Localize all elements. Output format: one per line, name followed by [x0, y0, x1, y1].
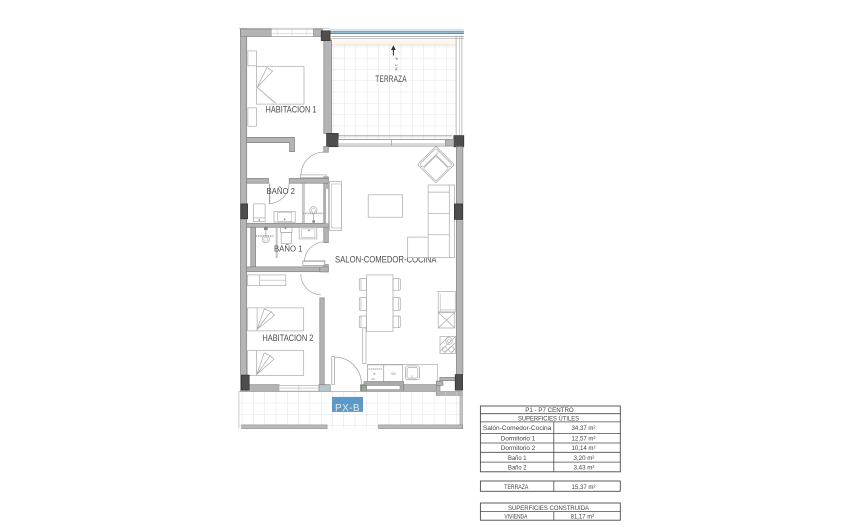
svg-text:HABITACION 2: HABITACION 2 [262, 333, 313, 343]
svg-text:Dormitorio 1: Dormitorio 1 [501, 436, 536, 443]
svg-text:12,57 m²: 12,57 m² [572, 436, 596, 443]
svg-text:oo: oo [372, 377, 376, 381]
svg-text:SUPERFICIES CONSTRUIDA: SUPERFICIES CONSTRUIDA [508, 505, 590, 512]
svg-text:HABITACION 1: HABITACION 1 [266, 104, 317, 114]
svg-text:Baño 2: Baño 2 [508, 464, 527, 471]
svg-text:Baño 1: Baño 1 [508, 455, 527, 462]
svg-text:BAÑO 1: BAÑO 1 [274, 243, 303, 253]
svg-text:TERRAZA: TERRAZA [375, 74, 407, 84]
svg-text:3,20 m²: 3,20 m² [574, 455, 595, 462]
svg-text:PX-B: PX-B [335, 403, 360, 414]
svg-text:Dormitorio 2: Dormitorio 2 [501, 445, 536, 452]
svg-text:BAÑO 2: BAÑO 2 [267, 186, 296, 196]
svg-text:Salón-Comedor-Cocina: Salón-Comedor-Cocina [483, 425, 552, 432]
svg-text:P. 1%: P. 1% [394, 58, 399, 72]
svg-text:TERRAZA: TERRAZA [504, 484, 529, 491]
svg-text:3,43 m²: 3,43 m² [574, 464, 595, 471]
svg-text:10,14 m²: 10,14 m² [572, 445, 596, 452]
svg-text:81,17 m²: 81,17 m² [571, 513, 595, 520]
svg-text:34,37 m²: 34,37 m² [572, 425, 596, 432]
svg-text:SUPERFICIES ÚTILES: SUPERFICIES ÚTILES [518, 413, 579, 422]
svg-text:P1 - P7 CENTRO: P1 - P7 CENTRO [525, 407, 574, 414]
svg-text:o: o [411, 375, 413, 379]
svg-text:VIVIENDA: VIVIENDA [504, 513, 528, 520]
svg-text:15,37 m²: 15,37 m² [572, 484, 596, 491]
svg-text:55: 55 [391, 371, 396, 376]
